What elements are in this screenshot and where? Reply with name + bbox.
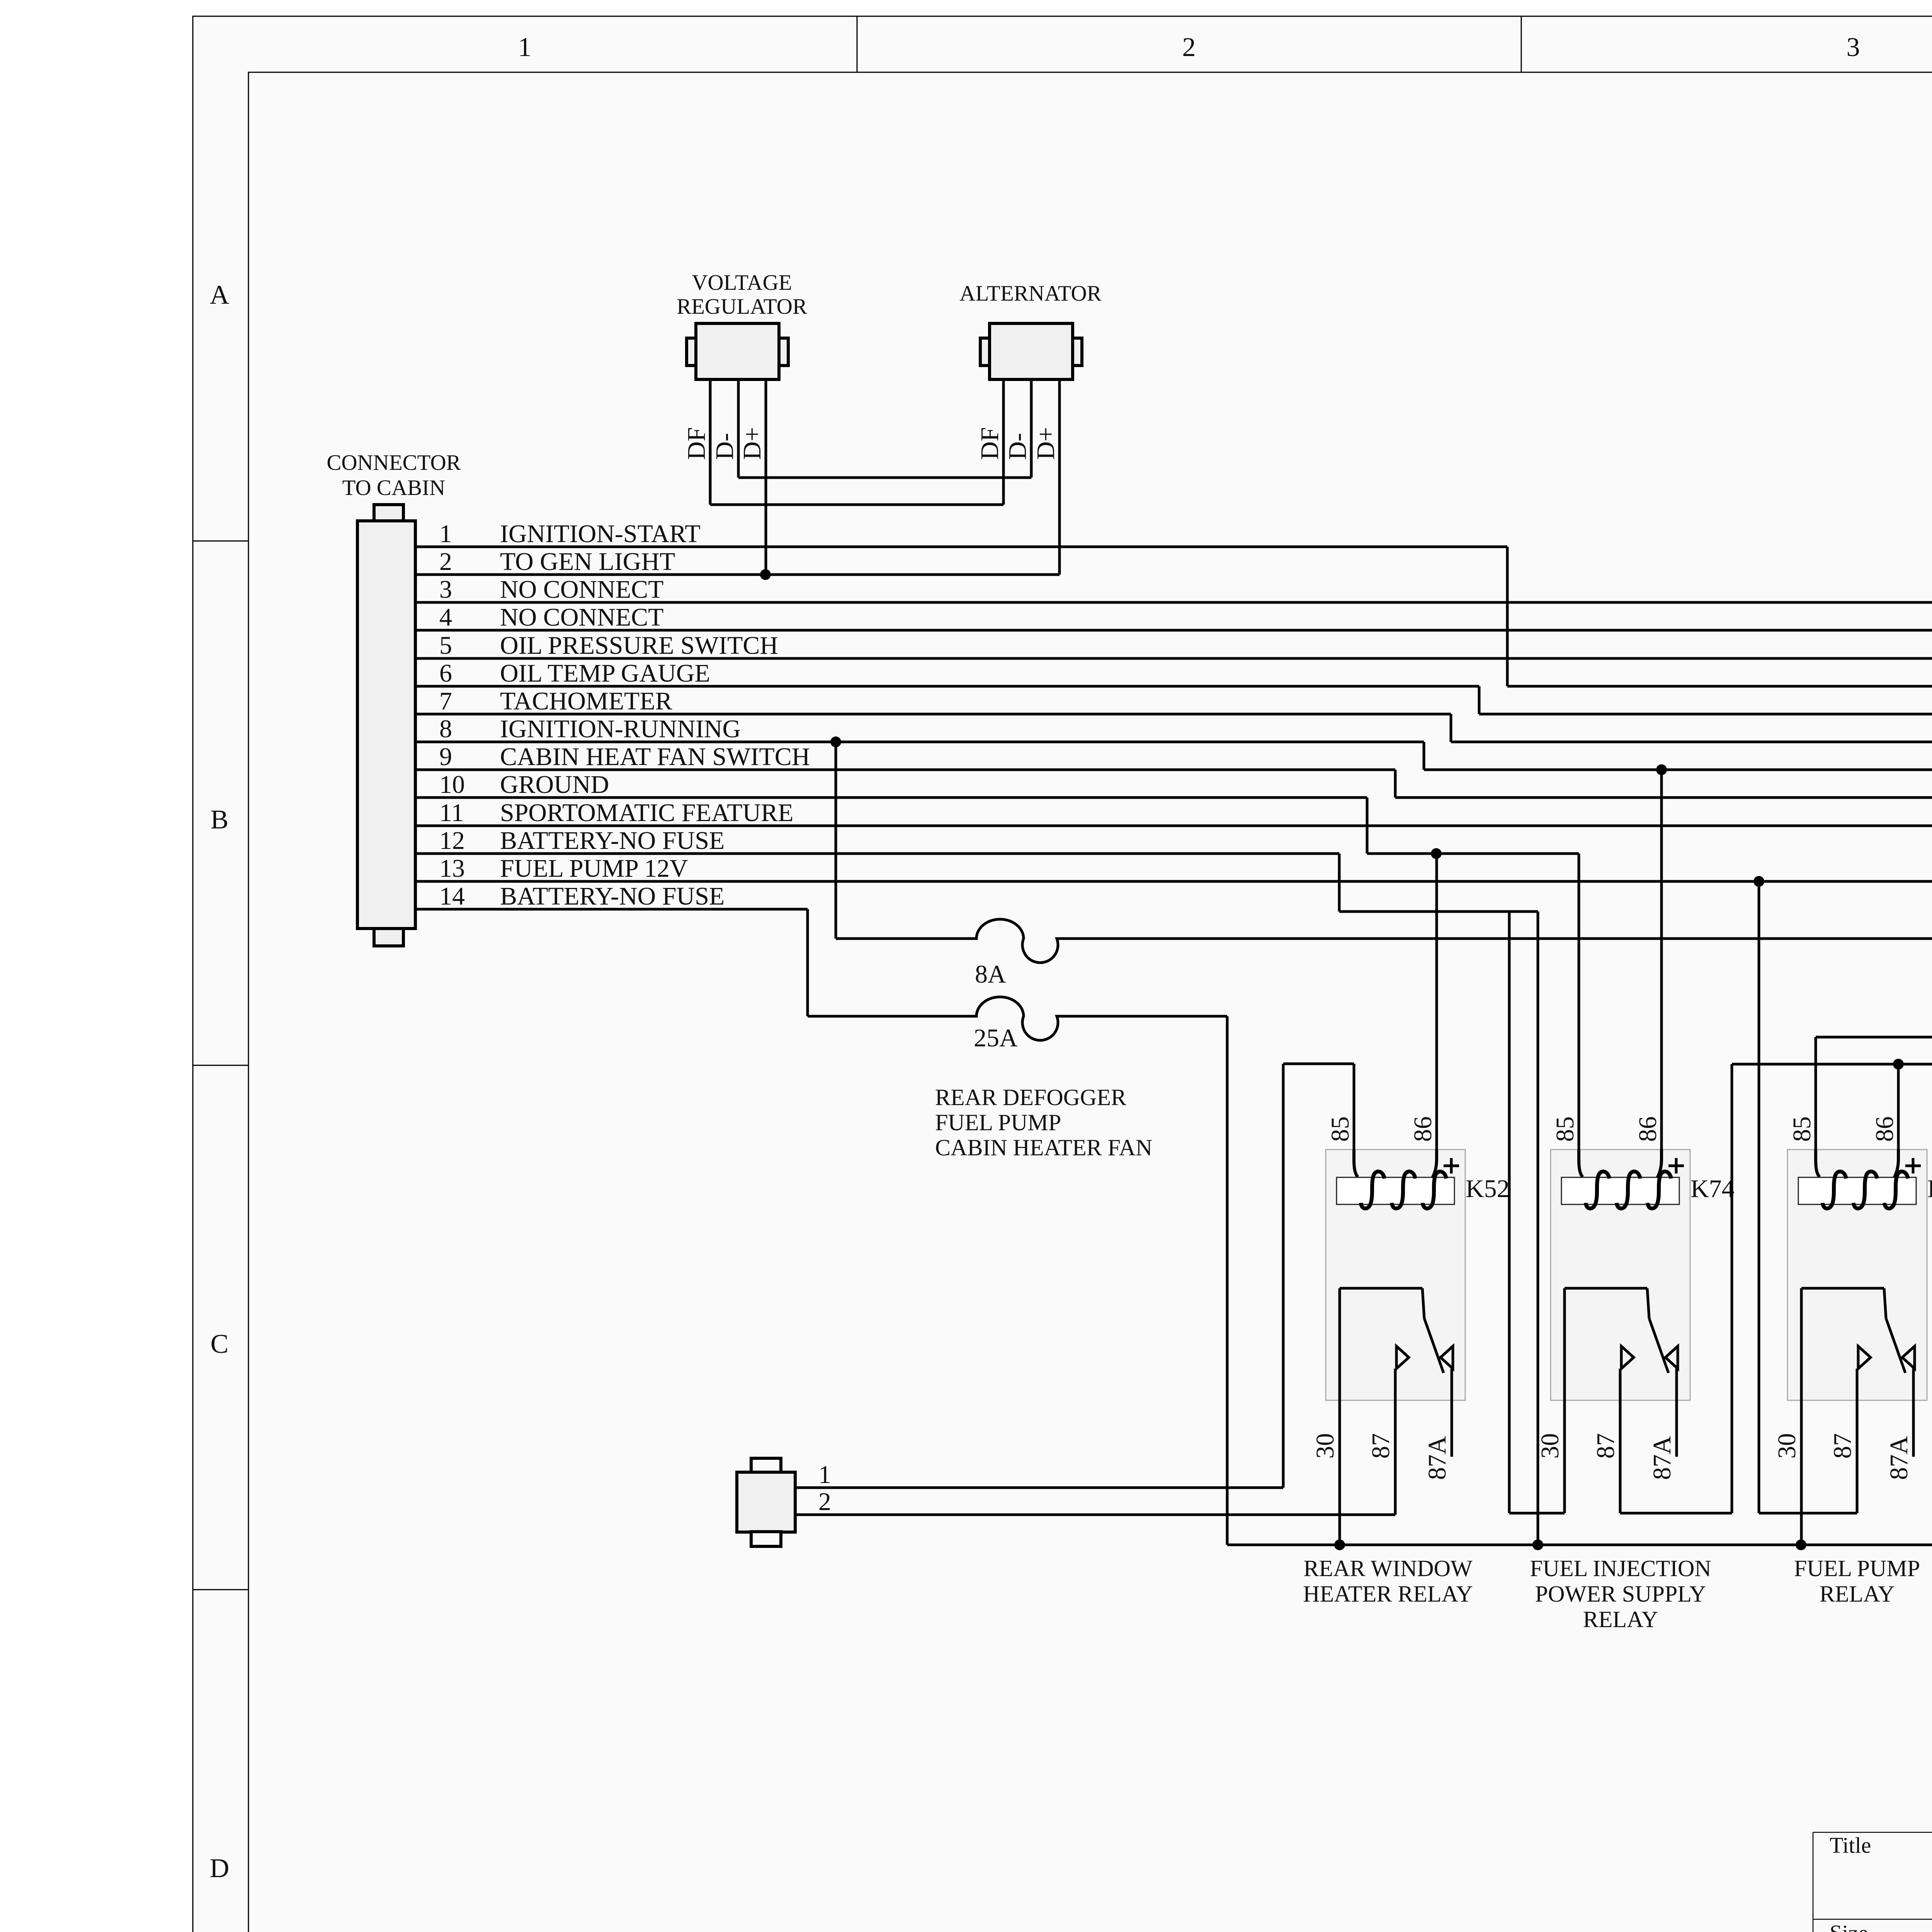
svg-text:FUEL INJECTION: FUEL INJECTION (1530, 1556, 1711, 1581)
svg-text:IGNITION-START: IGNITION-START (500, 520, 701, 548)
svg-text:8A: 8A (975, 960, 1006, 988)
svg-text:14: 14 (439, 882, 465, 910)
svg-text:K75: K75 (1927, 1175, 1932, 1203)
svg-text:8: 8 (439, 715, 452, 743)
svg-text:D-: D- (711, 433, 739, 460)
svg-text:D-: D- (1003, 433, 1032, 460)
svg-text:SPORTOMATIC FEATURE: SPORTOMATIC FEATURE (500, 799, 793, 827)
svg-text:30: 30 (1311, 1433, 1339, 1459)
svg-text:30: 30 (1773, 1433, 1801, 1459)
svg-text:2: 2 (439, 548, 452, 576)
svg-text:ALTERNATOR: ALTERNATOR (959, 281, 1101, 306)
svg-text:D+: D+ (1032, 427, 1060, 460)
svg-text:C: C (211, 1329, 229, 1359)
svg-text:A: A (210, 280, 230, 310)
svg-text:RELAY: RELAY (1583, 1607, 1658, 1632)
svg-text:GROUND: GROUND (500, 770, 609, 799)
svg-text:1: 1 (818, 1461, 831, 1489)
svg-text:CABIN HEAT FAN SWITCH: CABIN HEAT FAN SWITCH (500, 743, 810, 771)
svg-text:3: 3 (439, 575, 452, 604)
svg-text:87: 87 (1592, 1433, 1620, 1459)
svg-text:B: B (211, 805, 229, 835)
svg-text:K74: K74 (1690, 1175, 1735, 1203)
svg-text:TO CABIN: TO CABIN (342, 476, 446, 500)
svg-text:K52: K52 (1466, 1175, 1510, 1203)
svg-text:30: 30 (1536, 1433, 1564, 1459)
svg-text:CABIN HEATER FAN: CABIN HEATER FAN (935, 1135, 1152, 1160)
svg-text:POWER SUPPLY: POWER SUPPLY (1535, 1581, 1706, 1607)
svg-text:86: 86 (1409, 1116, 1437, 1142)
svg-text:HEATER RELAY: HEATER RELAY (1303, 1581, 1473, 1607)
svg-text:5: 5 (439, 631, 452, 660)
svg-text:85: 85 (1326, 1116, 1354, 1142)
svg-text:3: 3 (1847, 32, 1860, 62)
svg-text:NO CONNECT: NO CONNECT (500, 575, 664, 604)
svg-text:OIL TEMP GAUGE: OIL TEMP GAUGE (500, 659, 710, 687)
svg-text:FUEL PUMP: FUEL PUMP (1794, 1556, 1920, 1581)
svg-text:VOLTAGE: VOLTAGE (692, 270, 792, 295)
svg-text:87A: 87A (1885, 1436, 1913, 1480)
svg-text:1: 1 (518, 32, 532, 62)
svg-text:2: 2 (818, 1488, 831, 1516)
svg-text:FUEL PUMP: FUEL PUMP (935, 1110, 1061, 1135)
svg-text:D: D (210, 1854, 230, 1883)
svg-text:86: 86 (1634, 1116, 1662, 1142)
svg-text:BATTERY-NO FUSE: BATTERY-NO FUSE (500, 882, 724, 910)
svg-text:REGULATOR: REGULATOR (677, 294, 807, 319)
svg-text:87A: 87A (1648, 1436, 1676, 1480)
svg-text:TO GEN LIGHT: TO GEN LIGHT (500, 548, 675, 576)
svg-text:12: 12 (439, 827, 465, 855)
svg-text:1: 1 (439, 520, 452, 548)
svg-text:10: 10 (439, 770, 465, 799)
svg-text:86: 86 (1871, 1116, 1899, 1142)
svg-text:85: 85 (1551, 1116, 1579, 1142)
svg-text:Title: Title (1830, 1833, 1871, 1858)
svg-text:REAR DEFOGGER: REAR DEFOGGER (935, 1085, 1126, 1110)
svg-text:25A: 25A (974, 1024, 1018, 1052)
svg-text:REAR WINDOW: REAR WINDOW (1303, 1556, 1473, 1581)
svg-text:OIL PRESSURE SWITCH: OIL PRESSURE SWITCH (500, 631, 778, 660)
svg-text:9: 9 (439, 743, 452, 771)
svg-text:RELAY: RELAY (1820, 1581, 1895, 1607)
svg-text:D+: D+ (738, 427, 766, 460)
svg-text:85: 85 (1788, 1116, 1816, 1142)
svg-text:IGNITION-RUNNING: IGNITION-RUNNING (500, 715, 741, 743)
svg-text:13: 13 (439, 854, 465, 883)
svg-text:FUEL PUMP 12V: FUEL PUMP 12V (500, 854, 688, 883)
svg-text:BATTERY-NO FUSE: BATTERY-NO FUSE (500, 827, 724, 855)
svg-text:DF: DF (976, 427, 1004, 460)
svg-text:CONNECTOR: CONNECTOR (327, 451, 461, 475)
svg-text:DF: DF (682, 427, 711, 460)
svg-text:87A: 87A (1423, 1436, 1451, 1480)
svg-text:87: 87 (1367, 1433, 1395, 1459)
svg-text:TACHOMETER: TACHOMETER (500, 687, 672, 715)
svg-text:4: 4 (439, 603, 452, 631)
svg-text:7: 7 (439, 687, 452, 715)
svg-text:Size: Size (1830, 1920, 1868, 1932)
svg-text:11: 11 (439, 799, 464, 827)
svg-text:2: 2 (1182, 32, 1196, 62)
svg-text:6: 6 (439, 659, 452, 687)
svg-text:NO CONNECT: NO CONNECT (500, 603, 664, 631)
svg-text:87: 87 (1828, 1433, 1857, 1459)
